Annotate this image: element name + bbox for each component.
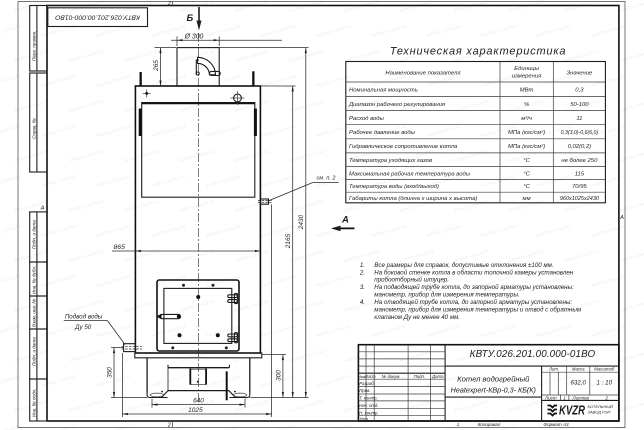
svg-text:2: 2 (167, 423, 171, 429)
svg-text:Лист: Лист (544, 395, 557, 400)
svg-text:Нач. отд.: Нач. отд. (359, 403, 378, 408)
svg-text:°С: °С (523, 158, 530, 164)
svg-text:Ду 50: Ду 50 (74, 324, 92, 331)
svg-text:Инв. № подл.: Инв. № подл. (31, 388, 36, 417)
svg-text:1.: 1. (360, 262, 365, 269)
svg-text:Инв. № дубл.: Инв. № дубл. (31, 266, 36, 294)
svg-text:640: 640 (193, 398, 204, 405)
svg-text:Heatexpert-КВр-0,3- КБ(К): Heatexpert-КВр-0,3- КБ(К) (451, 386, 536, 395)
svg-text:Перв. примен.: Перв. примен. (31, 30, 36, 61)
svg-text:1025: 1025 (188, 407, 203, 414)
svg-text:Подп. и дата: Подп. и дата (31, 337, 36, 366)
svg-text:Габариты котла (длинна х ширин: Габариты котла (длинна х ширина х высота… (349, 196, 477, 202)
svg-text:Диапазон рабочего регулировани: Диапазон рабочего регулирования (348, 102, 446, 108)
svg-text:115: 115 (575, 171, 585, 177)
svg-text:Наименование показателя: Наименование показателя (385, 71, 461, 77)
svg-text:Температура воды (вход/выход): Температура воды (вход/выход) (349, 184, 439, 190)
svg-text:°С: °С (523, 184, 530, 190)
svg-text:Взам. инв. №: Взам. инв. № (31, 299, 36, 327)
svg-text:Подп. и дата: Подп. и дата (31, 220, 36, 249)
svg-text:измерения: измерения (512, 74, 542, 80)
svg-text:°С: °С (523, 171, 530, 177)
svg-text:632,0: 632,0 (570, 380, 586, 387)
svg-text:ЗАВОД РЭП: ЗАВОД РЭП (588, 410, 611, 415)
svg-text:0,02(0,2): 0,02(0,2) (568, 144, 592, 150)
svg-text:960х1025х2430: 960х1025х2430 (560, 196, 600, 202)
svg-text:2: 2 (604, 395, 608, 400)
svg-text:Подп.: Подп. (414, 374, 425, 379)
svg-text:0,3(3,0)-0,6(6,0): 0,3(3,0)-0,6(6,0) (561, 130, 599, 136)
svg-text:пробоотборный штуцер.: пробоотборный штуцер. (374, 277, 449, 284)
svg-text:1 : 10: 1 : 10 (597, 380, 613, 387)
svg-text:клапаном Ду не менее 40 мм.: клапаном Ду не менее 40 мм. (374, 314, 460, 321)
svg-text:Расход воды: Расход воды (349, 116, 385, 122)
svg-text:МПа (кгс/см²): МПа (кгс/см²) (508, 130, 545, 136)
svg-text:Лист: Лист (364, 374, 376, 379)
svg-text:Гидравлическое сопротивление к: Гидравлическое сопротивление котла (349, 144, 458, 150)
svg-text:%: % (524, 102, 529, 108)
svg-text:На боковой стенке котла в обла: На боковой стенке котла в области топочн… (374, 269, 573, 276)
svg-text:11: 11 (576, 116, 582, 122)
svg-text:2165: 2165 (285, 233, 292, 249)
svg-text:Масса: Масса (572, 367, 585, 372)
svg-text:Котел водогрейный: Котел водогрейный (457, 375, 530, 384)
svg-text:Утв.: Утв. (359, 416, 369, 421)
svg-text:KVZR: KVZR (559, 404, 585, 418)
svg-text:Рабочее давление воды: Рабочее давление воды (349, 130, 416, 136)
svg-text:Б: Б (187, 13, 194, 24)
svg-text:манометр, прибор для измерения: манометр, прибор для измерения температу… (374, 292, 519, 299)
svg-text:Все размеры для справок, допус: Все размеры для справок, допустимые откл… (374, 262, 553, 269)
svg-text:А: А (619, 215, 624, 221)
svg-text:865: 865 (114, 244, 126, 251)
svg-text:Формат А3: Формат А3 (543, 422, 569, 427)
svg-text:№ докум.: № докум. (382, 374, 401, 379)
svg-text:КОТЕЛЬНЫЙ: КОТЕЛЬНЫЙ (588, 404, 613, 409)
svg-text:Копировал: Копировал (478, 422, 501, 427)
svg-text:КВТУ.026.201.00.000-01ВО: КВТУ.026.201.00.000-01ВО (470, 349, 596, 360)
svg-text:2430: 2430 (298, 214, 305, 230)
svg-text:2.: 2. (359, 269, 365, 276)
svg-text:Н. контр.: Н. контр. (359, 410, 378, 415)
svg-text:Справ. №: Справ. № (31, 118, 36, 139)
svg-text:4.: 4. (360, 299, 365, 306)
svg-text:265: 265 (153, 60, 160, 72)
svg-text:Подвод воды: Подвод воды (65, 314, 103, 321)
svg-text:70/95: 70/95 (572, 184, 587, 190)
svg-text:КВТУ.026.201.00.000-01ВО: КВТУ.026.201.00.000-01ВО (55, 13, 140, 20)
svg-text:Листов: Листов (572, 395, 590, 400)
svg-text:манометр, прибор для измерения: манометр, прибор для измерения температу… (374, 307, 582, 314)
svg-text:Пров.: Пров. (359, 388, 370, 393)
svg-text:Т. контр.: Т. контр. (359, 396, 378, 401)
svg-text:не более 250: не более 250 (561, 158, 598, 164)
svg-text:МВт: МВт (520, 88, 534, 94)
svg-text:А: А (40, 206, 45, 212)
svg-text:1: 1 (457, 422, 460, 427)
svg-text:Максимальная рабочая температу: Максимальная рабочая температура воды (349, 171, 471, 177)
svg-text:350: 350 (106, 367, 113, 378)
svg-text:На отводящей трубе котла, до з: На отводящей трубе котла, до запорной ар… (374, 299, 572, 306)
svg-text:Значение: Значение (566, 71, 593, 77)
svg-text:Ø 300: Ø 300 (184, 33, 204, 40)
svg-text:На подводящей трубе котла, до: На подводящей трубе котла, до запорной а… (374, 284, 574, 291)
svg-text:50-100: 50-100 (570, 102, 589, 108)
svg-text:МПа (кгс/см²): МПа (кгс/см²) (508, 144, 545, 150)
svg-text:Единицы: Единицы (514, 66, 539, 72)
svg-text:см. п. 2: см. п. 2 (316, 176, 336, 182)
svg-text:Температура уходящих газов: Температура уходящих газов (349, 158, 432, 164)
svg-text:2: 2 (167, 1, 171, 7)
svg-text:Номинальная мощность: Номинальная мощность (349, 88, 418, 94)
svg-text:Масштаб: Масштаб (594, 367, 615, 372)
svg-text:Техническая характеристика: Техническая характеристика (390, 46, 567, 58)
svg-text:Лит.: Лит. (548, 367, 559, 372)
svg-text:м³/ч: м³/ч (521, 116, 532, 122)
svg-text:Дата: Дата (431, 374, 444, 379)
svg-text:Разраб.: Разраб. (359, 381, 375, 386)
svg-text:мм: мм (523, 196, 531, 202)
svg-text:3.: 3. (360, 284, 365, 291)
svg-text:А: А (341, 215, 349, 226)
svg-text:0,3: 0,3 (575, 88, 584, 94)
svg-text:300: 300 (275, 370, 282, 381)
